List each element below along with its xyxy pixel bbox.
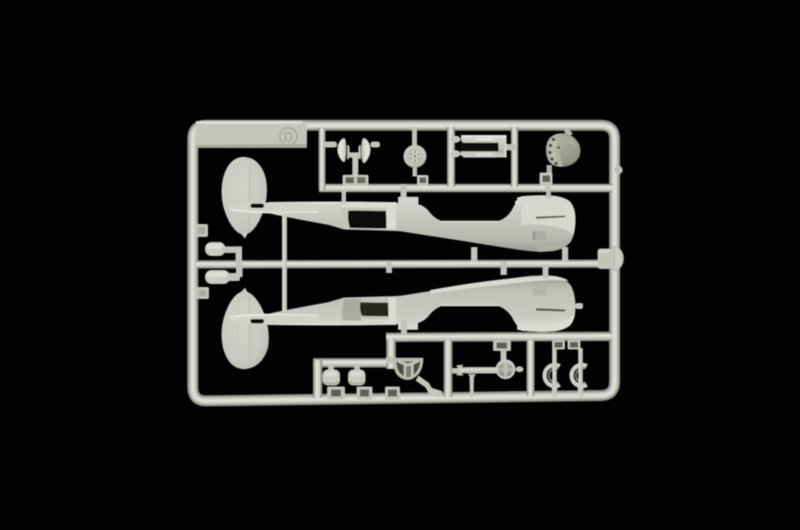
svg-text:D: D <box>284 129 294 144</box>
